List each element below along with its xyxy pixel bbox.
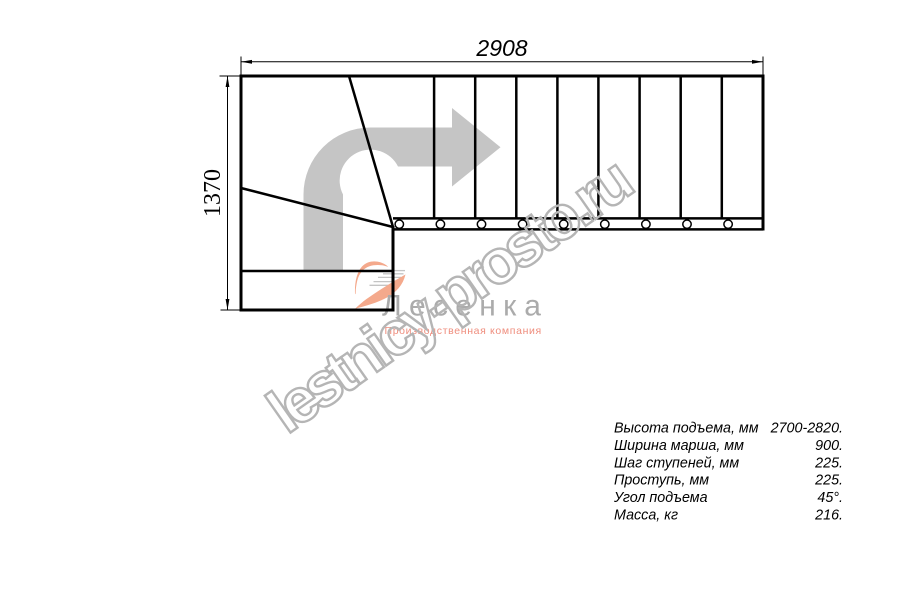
svg-text:Высота подъема, мм: Высота подъема, мм [614, 421, 759, 437]
svg-text:45°.: 45°. [817, 490, 843, 506]
svg-text:Проступь, мм: Проступь, мм [614, 473, 709, 489]
svg-text:2700-2820.: 2700-2820. [770, 421, 843, 437]
svg-text:Шаг ступеней, мм: Шаг ступеней, мм [614, 455, 739, 471]
svg-text:Масса, кг: Масса, кг [614, 508, 678, 524]
svg-text:1370: 1370 [200, 169, 226, 217]
svg-text:225.: 225. [814, 473, 843, 489]
svg-text:225.: 225. [814, 455, 843, 471]
svg-text:216.: 216. [814, 508, 843, 524]
svg-text:Угол подъема: Угол подъема [613, 490, 708, 506]
svg-text:2908: 2908 [475, 35, 527, 61]
svg-text:900.: 900. [815, 438, 843, 454]
svg-text:Ширина марша, мм: Ширина марша, мм [614, 438, 744, 454]
